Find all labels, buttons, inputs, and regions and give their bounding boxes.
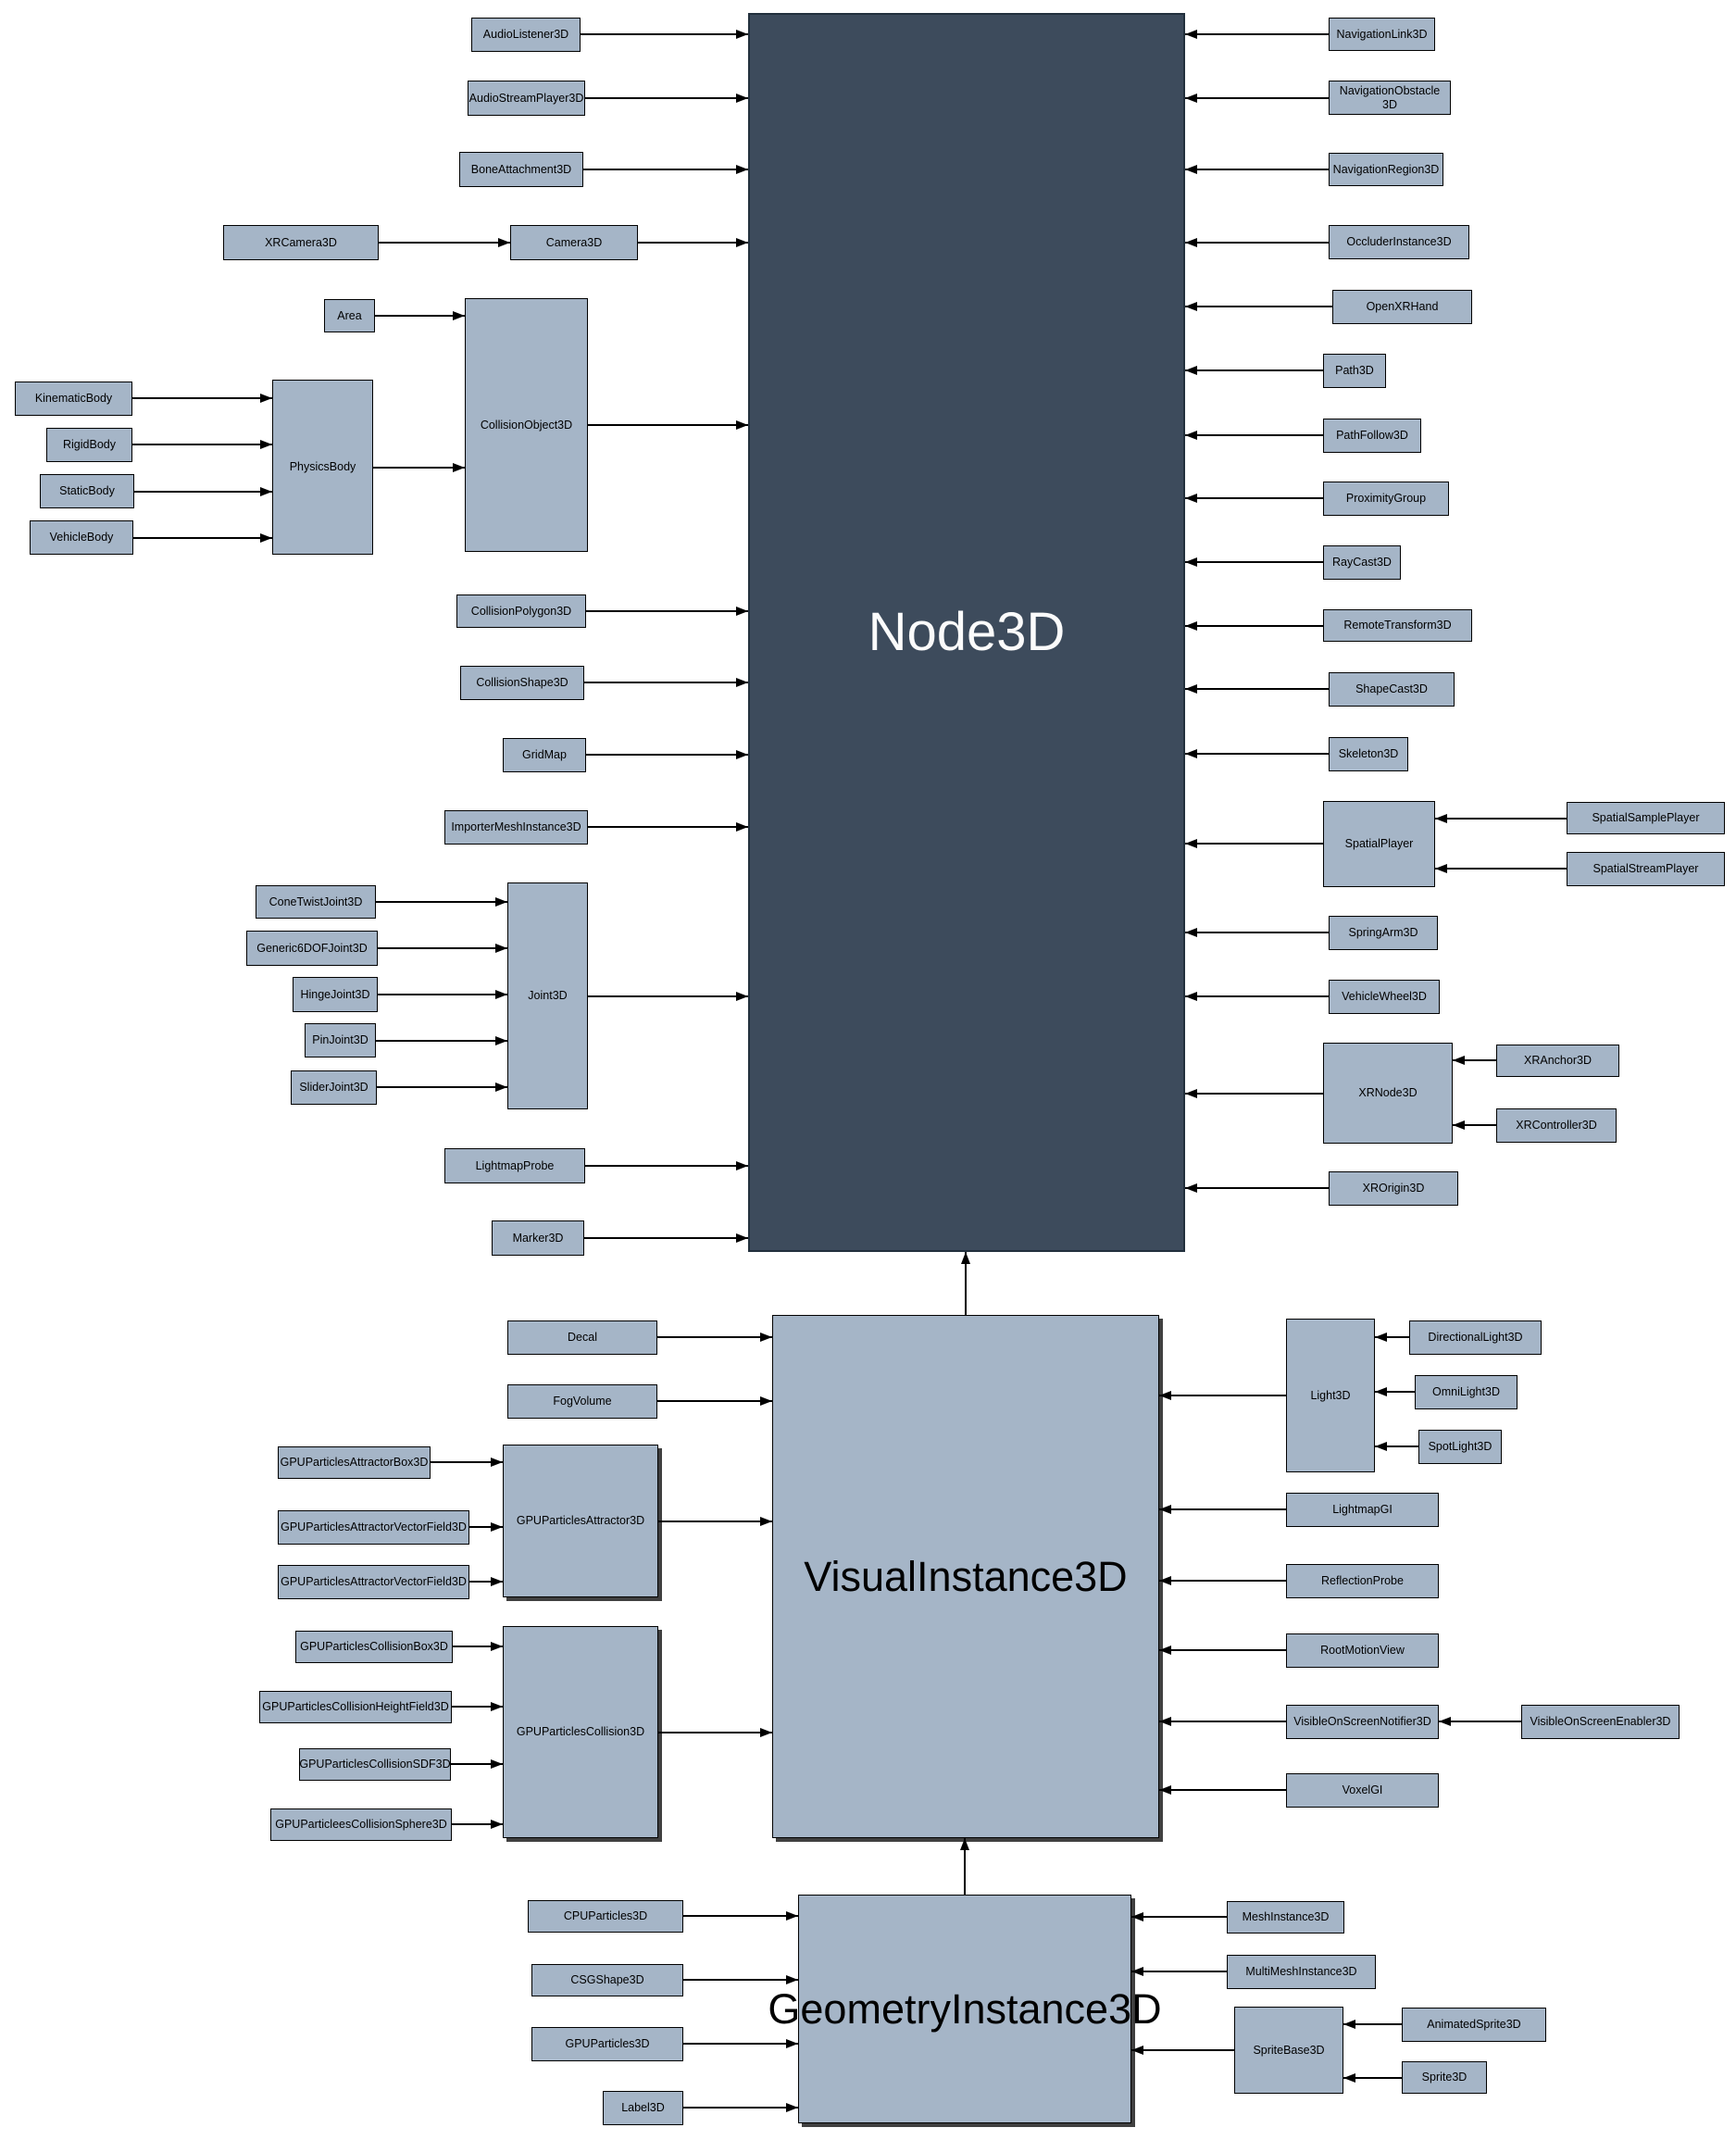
node-label-generic6dofjoint3d: Generic6DOFJoint3D — [255, 942, 369, 955]
node-importermeshinstance3d: ImporterMeshInstance3D — [444, 810, 588, 845]
node-boneattachment3d: BoneAttachment3D — [459, 152, 583, 187]
node-label-pathfollow3d: PathFollow3D — [1334, 429, 1410, 442]
node-label-sliderjoint3d: SliderJoint3D — [297, 1081, 369, 1094]
node-label-gpuparticles3d: GPUParticles3D — [564, 2037, 652, 2050]
node-physicsbody: PhysicsBody — [272, 380, 373, 555]
node-spatialsampleplayer: SpatialSamplePlayer — [1567, 802, 1725, 834]
node-light3d: Light3D — [1286, 1319, 1375, 1472]
node-visibleonscreennotifier3d: VisibleOnScreenNotifier3D — [1286, 1705, 1439, 1739]
node-gpuparticlescollisionsdf3d: GPUParticlesCollisionSDF3D — [299, 1748, 451, 1781]
node-xrnode3d: XRNode3D — [1323, 1043, 1453, 1144]
node-sliderjoint3d: SliderJoint3D — [291, 1070, 377, 1105]
node-joint3d: Joint3D — [507, 882, 588, 1109]
node-label-rootmotionview: RootMotionView — [1318, 1644, 1406, 1657]
node-label-xrorigin3d: XROrigin3D — [1361, 1182, 1427, 1195]
node-label-collisionobject3d: CollisionObject3D — [479, 419, 574, 432]
node-label-occluderinstance3d: OccluderInstance3D — [1344, 235, 1453, 248]
node-label-conetwistjoint3d: ConeTwistJoint3D — [268, 895, 365, 908]
node-label-lightmapgi: LightmapGI — [1330, 1503, 1394, 1516]
node-shapecast3d: ShapeCast3D — [1329, 672, 1455, 707]
node-label-importermeshinstance3d: ImporterMeshInstance3D — [449, 820, 582, 833]
node-label-physicsbody: PhysicsBody — [288, 460, 358, 473]
node-label-gpuparticlescollisionbox3d: GPUParticlesCollisionBox3D — [298, 1640, 450, 1653]
node-raycast3d: RayCast3D — [1323, 545, 1401, 580]
node-label-fogvolume: FogVolume — [551, 1395, 613, 1408]
node-navigationobstacle3d: NavigationObstacle 3D — [1329, 81, 1451, 115]
node-pinjoint3d: PinJoint3D — [305, 1023, 376, 1057]
node-vehiclewheel3d: VehicleWheel3D — [1329, 980, 1440, 1014]
node-label-rigidbody: RigidBody — [61, 438, 118, 451]
node-label-springarm3d: SpringArm3D — [1346, 926, 1419, 939]
node-gpuparticleescollisionsphere3d: GPUParticleesCollisionSphere3D — [270, 1808, 452, 1841]
class-hierarchy-diagram: Node3DAudioListener3DAudioStreamPlayer3D… — [0, 0, 1736, 2140]
node-xrcontroller3d: XRController3D — [1496, 1108, 1617, 1143]
node-decal: Decal — [507, 1320, 657, 1355]
node-path3d: Path3D — [1323, 354, 1386, 388]
node-label-visibleonscreenenabler3d: VisibleOnScreenEnabler3D — [1529, 1715, 1673, 1728]
node-meshinstance3d: MeshInstance3D — [1227, 1901, 1344, 1934]
node-spatialstreamplayer: SpatialStreamPlayer — [1567, 852, 1725, 886]
node-label-decal: Decal — [566, 1331, 599, 1344]
node-label-kinematicbody: KinematicBody — [33, 392, 114, 405]
node-label-path3d: Path3D — [1333, 364, 1376, 377]
node-gpuparticlescollision3d: GPUParticlesCollision3D — [503, 1626, 658, 1838]
node-lightmapgi: LightmapGI — [1286, 1493, 1439, 1527]
node-label-geometryinstance3d: GeometryInstance3D — [766, 1985, 1163, 2034]
node-label-gridmap: GridMap — [520, 748, 568, 761]
node-label-navigationobstacle3d: NavigationObstacle 3D — [1330, 84, 1450, 111]
node-gpuparticles3d: GPUParticles3D — [531, 2027, 683, 2061]
node-gpuparticlesattractorbox3d: GPUParticlesAttractorBox3D — [278, 1446, 431, 1479]
node-label-gpuparticleescollisionsphere3d: GPUParticleesCollisionSphere3D — [273, 1818, 449, 1831]
node-label-hingejoint3d: HingeJoint3D — [298, 988, 371, 1001]
node-occluderinstance3d: OccluderInstance3D — [1329, 225, 1469, 259]
node-label-raycast3d: RayCast3D — [1330, 556, 1393, 569]
node-label-vehiclewheel3d: VehicleWheel3D — [1340, 990, 1429, 1003]
node-collisionpolygon3d: CollisionPolygon3D — [456, 594, 586, 628]
node-audiolistener3d: AudioListener3D — [471, 18, 581, 52]
node-label-marker3d: Marker3D — [511, 1232, 566, 1245]
node-label-gpuparticlesattractorvectorfield3d-b: GPUParticlesAttractorVectorField3D — [279, 1575, 468, 1588]
node-camera3d: Camera3D — [510, 225, 638, 260]
node-label-spatialstreamplayer: SpatialStreamPlayer — [1592, 862, 1701, 875]
node-layer: Node3DAudioListener3DAudioStreamPlayer3D… — [0, 0, 1736, 2140]
node-label-gpuparticlescollisionsdf3d: GPUParticlesCollisionSDF3D — [297, 1758, 452, 1771]
node-skeleton3d: Skeleton3D — [1329, 737, 1408, 771]
node-visualinstance3d: VisualInstance3D — [772, 1315, 1159, 1838]
node-label-spatialplayer: SpatialPlayer — [1343, 837, 1416, 850]
node-pathfollow3d: PathFollow3D — [1323, 419, 1421, 453]
node-label-proximitygroup: ProximityGroup — [1344, 492, 1428, 505]
node-label-node3d: Node3D — [867, 602, 1068, 664]
node-label-cpuparticles3d: CPUParticles3D — [562, 1909, 649, 1922]
node-marker3d: Marker3D — [492, 1220, 584, 1256]
node-label-xrcamera3d: XRCamera3D — [263, 236, 339, 249]
node-label-xrcontroller3d: XRController3D — [1514, 1119, 1599, 1132]
node-audiostreamplayer3d: AudioStreamPlayer3D — [468, 81, 585, 116]
node-lightmapprobe: LightmapProbe — [444, 1148, 585, 1183]
node-label-area: Area — [335, 309, 363, 322]
node-gpuparticlescollisionheightfield3d: GPUParticlesCollisionHeightField3D — [259, 1691, 452, 1723]
node-label-animatedsprite3d: AnimatedSprite3D — [1425, 2018, 1522, 2031]
node-reflectionprobe: ReflectionProbe — [1286, 1564, 1439, 1598]
node-collisionobject3d: CollisionObject3D — [465, 298, 588, 552]
node-label-gpuparticlesattractorvectorfield3d-a: GPUParticlesAttractorVectorField3D — [279, 1521, 468, 1533]
node-label-audiolistener3d: AudioListener3D — [481, 28, 570, 41]
node-springarm3d: SpringArm3D — [1329, 916, 1438, 950]
node-animatedsprite3d: AnimatedSprite3D — [1402, 2008, 1546, 2042]
node-area: Area — [324, 299, 375, 332]
node-label-csgshape3d: CSGShape3D — [568, 1973, 645, 1986]
node-label-xranchor3d: XRAnchor3D — [1522, 1054, 1593, 1067]
node-label-shapecast3d: ShapeCast3D — [1354, 682, 1430, 695]
node-label-gpuparticlesattractor3d: GPUParticlesAttractor3D — [515, 1514, 646, 1527]
node-label-light3d: Light3D — [1308, 1389, 1352, 1402]
node-rootmotionview: RootMotionView — [1286, 1633, 1439, 1668]
node-label-spotlight3d: SpotLight3D — [1427, 1440, 1494, 1453]
node-label-sprite3d: Sprite3D — [1420, 2071, 1469, 2084]
node-label-collisionpolygon3d: CollisionPolygon3D — [469, 605, 573, 618]
node-csgshape3d: CSGShape3D — [531, 1964, 683, 1996]
node-fogvolume: FogVolume — [507, 1384, 657, 1419]
node-spritebase3d: SpriteBase3D — [1234, 2007, 1343, 2094]
node-label-reflectionprobe: ReflectionProbe — [1319, 1574, 1405, 1587]
node-label-vehiclebody: VehicleBody — [48, 531, 116, 544]
node-openxrhand: OpenXRHand — [1332, 290, 1472, 324]
node-label-pinjoint3d: PinJoint3D — [310, 1033, 369, 1046]
node-cpuparticles3d: CPUParticles3D — [528, 1900, 683, 1933]
node-label-boneattachment3d: BoneAttachment3D — [469, 163, 573, 176]
node-label-staticbody: StaticBody — [57, 484, 117, 497]
node-spotlight3d: SpotLight3D — [1418, 1430, 1502, 1464]
node-label-xrnode3d: XRNode3D — [1356, 1086, 1418, 1099]
node-label-label3d: Label3D — [619, 2101, 667, 2114]
node-label-voxelgi: VoxelGI — [1341, 1783, 1385, 1796]
node-gpuparticlesattractorvectorfield3d-a: GPUParticlesAttractorVectorField3D — [278, 1510, 469, 1545]
node-xrorigin3d: XROrigin3D — [1329, 1171, 1458, 1206]
node-conetwistjoint3d: ConeTwistJoint3D — [256, 885, 376, 919]
node-geometryinstance3d: GeometryInstance3D — [798, 1895, 1131, 2123]
node-visibleonscreenenabler3d: VisibleOnScreenEnabler3D — [1521, 1705, 1680, 1739]
node-gpuparticlesattractorvectorfield3d-b: GPUParticlesAttractorVectorField3D — [278, 1565, 469, 1599]
node-label-lightmapprobe: LightmapProbe — [474, 1159, 556, 1172]
node-label-meshinstance3d: MeshInstance3D — [1241, 1910, 1331, 1923]
node-label-gpuparticlescollisionheightfield3d: GPUParticlesCollisionHeightField3D — [260, 1700, 450, 1713]
node-label-gpuparticlescollision3d: GPUParticlesCollision3D — [515, 1725, 646, 1738]
node-label-navigationregion3d: NavigationRegion3D — [1331, 163, 1442, 176]
node-gpuparticlesattractor3d: GPUParticlesAttractor3D — [503, 1445, 658, 1597]
node-navigationlink3d: NavigationLink3D — [1329, 18, 1435, 51]
node-label-visibleonscreennotifier3d: VisibleOnScreenNotifier3D — [1292, 1715, 1432, 1728]
node-voxelgi: VoxelGI — [1286, 1773, 1439, 1808]
node-label-camera3d: Camera3D — [544, 236, 604, 249]
node-sprite3d: Sprite3D — [1402, 2061, 1487, 2094]
node-xrcamera3d: XRCamera3D — [223, 225, 379, 260]
node-multimeshinstance3d: MultiMeshInstance3D — [1227, 1955, 1376, 1989]
node-label-navigationlink3d: NavigationLink3D — [1335, 28, 1430, 41]
node-xranchor3d: XRAnchor3D — [1496, 1045, 1619, 1077]
node-label-audiostreamplayer3d: AudioStreamPlayer3D — [468, 92, 586, 105]
node-label-multimeshinstance3d: MultiMeshInstance3D — [1243, 1965, 1358, 1978]
node-node3d: Node3D — [748, 13, 1185, 1252]
node-gridmap: GridMap — [503, 738, 586, 772]
node-staticbody: StaticBody — [40, 474, 134, 508]
node-collisionshape3d: CollisionShape3D — [460, 666, 584, 700]
node-rigidbody: RigidBody — [46, 428, 132, 462]
node-label-visualinstance3d: VisualInstance3D — [802, 1553, 1129, 1601]
node-hingejoint3d: HingeJoint3D — [293, 977, 378, 1012]
node-generic6dofjoint3d: Generic6DOFJoint3D — [246, 931, 378, 966]
node-kinematicbody: KinematicBody — [15, 382, 132, 416]
node-directionallight3d: DirectionalLight3D — [1409, 1320, 1542, 1355]
node-label-skeleton3d: Skeleton3D — [1337, 747, 1401, 760]
node-label-joint3d: Joint3D — [526, 989, 568, 1002]
node-label-remotetransform3d: RemoteTransform3D — [1342, 619, 1453, 632]
node-vehiclebody: VehicleBody — [30, 520, 133, 555]
node-navigationregion3d: NavigationRegion3D — [1329, 153, 1443, 186]
node-label-omnilight3d: OmniLight3D — [1430, 1385, 1502, 1398]
node-label-openxrhand: OpenXRHand — [1365, 300, 1441, 313]
node-remotetransform3d: RemoteTransform3D — [1323, 609, 1472, 642]
node-label-directionallight3d: DirectionalLight3D — [1426, 1331, 1524, 1344]
node-omnilight3d: OmniLight3D — [1415, 1375, 1517, 1409]
node-label-spritebase3d: SpriteBase3D — [1251, 2044, 1326, 2057]
node-spatialplayer: SpatialPlayer — [1323, 801, 1435, 887]
node-label-collisionshape3d: CollisionShape3D — [474, 676, 569, 689]
node-gpuparticlescollisionbox3d: GPUParticlesCollisionBox3D — [295, 1631, 453, 1663]
node-label3d: Label3D — [603, 2091, 683, 2125]
node-label-spatialsampleplayer: SpatialSamplePlayer — [1590, 811, 1701, 824]
node-label-gpuparticlesattractorbox3d: GPUParticlesAttractorBox3D — [279, 1456, 431, 1469]
node-proximitygroup: ProximityGroup — [1323, 482, 1449, 516]
